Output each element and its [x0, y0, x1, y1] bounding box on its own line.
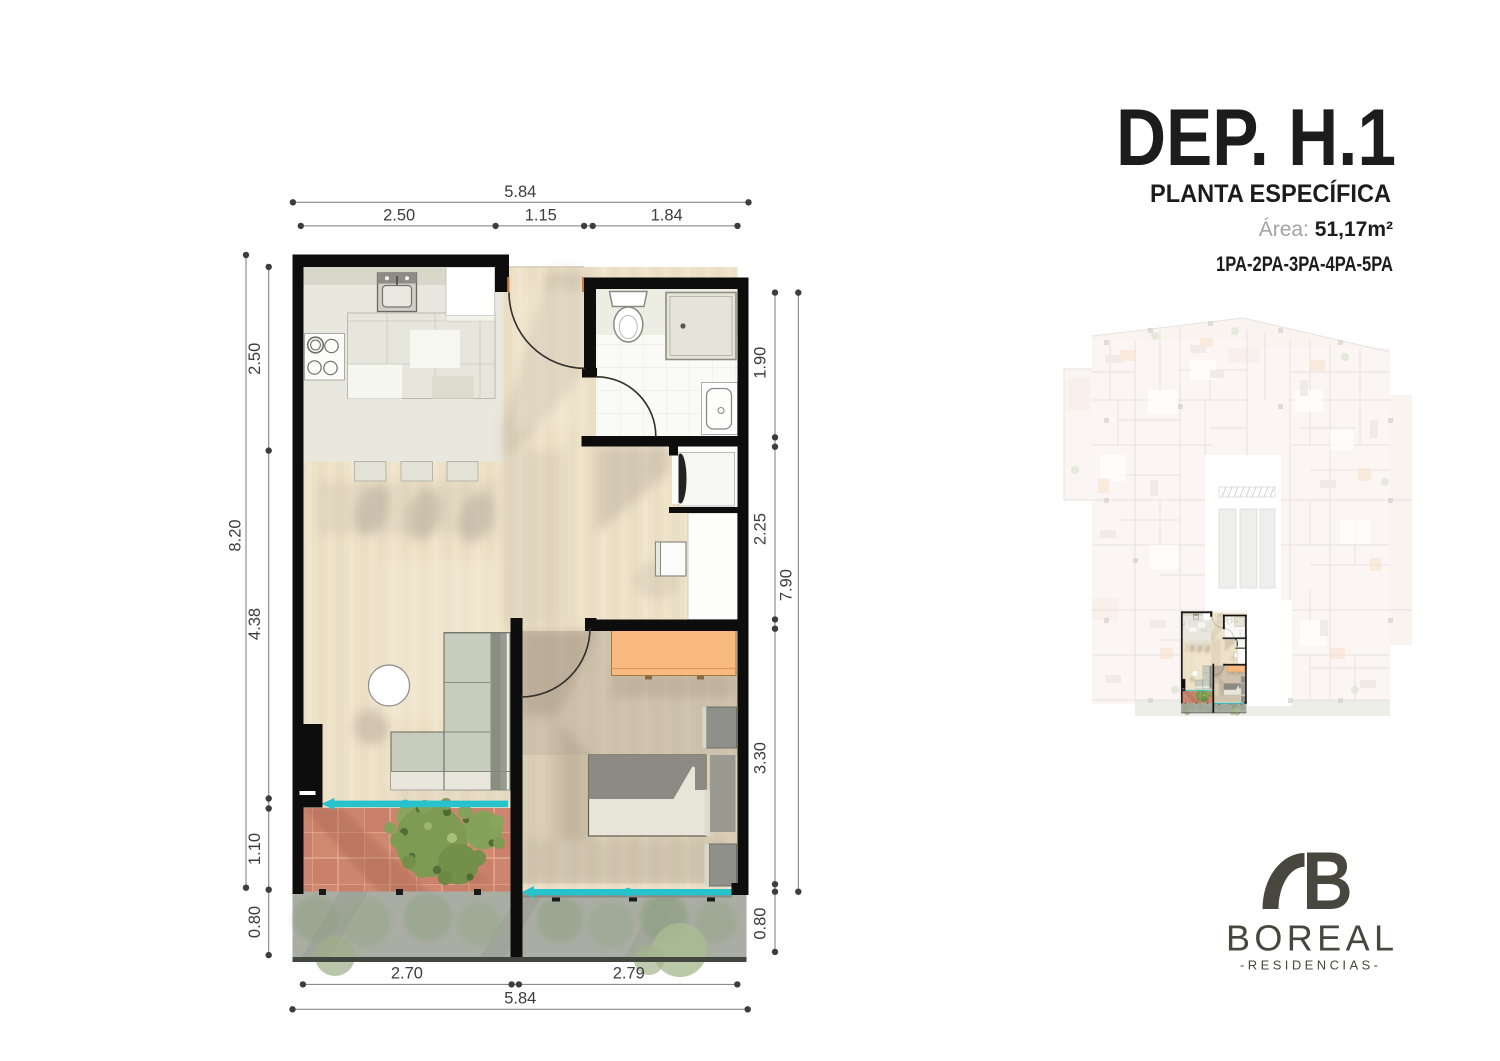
svg-text:1.84: 1.84 [651, 207, 683, 225]
svg-text:DEP. H.1: DEP. H.1 [1116, 93, 1396, 183]
svg-text:5.84: 5.84 [504, 990, 536, 1008]
svg-text:2.50: 2.50 [383, 207, 415, 225]
svg-text:7.90: 7.90 [778, 569, 796, 601]
svg-text:0.80: 0.80 [752, 908, 770, 940]
svg-text:4.38: 4.38 [246, 608, 264, 640]
svg-text:-RESIDENCIAS-: -RESIDENCIAS- [1240, 958, 1378, 973]
svg-text:2.70: 2.70 [391, 965, 423, 983]
svg-text:2.79: 2.79 [613, 965, 645, 983]
svg-text:0.80: 0.80 [246, 906, 264, 938]
svg-text:1PA-2PA-3PA-4PA-5PA: 1PA-2PA-3PA-4PA-5PA [1216, 253, 1393, 276]
svg-text:1.15: 1.15 [525, 207, 557, 225]
svg-text:3.30: 3.30 [752, 742, 770, 774]
svg-text:BOREAL: BOREAL [1226, 918, 1394, 959]
svg-text:2.25: 2.25 [752, 513, 770, 545]
svg-text:1.90: 1.90 [752, 347, 770, 379]
svg-text:PLANTA ESPECÍFICA: PLANTA ESPECÍFICA [1150, 179, 1391, 208]
svg-text:Área: 51,17m²: Área: 51,17m² [1259, 218, 1393, 241]
svg-text:1.10: 1.10 [246, 833, 264, 865]
svg-text:8.20: 8.20 [227, 519, 245, 551]
svg-text:5.84: 5.84 [504, 183, 536, 201]
svg-text:2.50: 2.50 [246, 343, 264, 375]
